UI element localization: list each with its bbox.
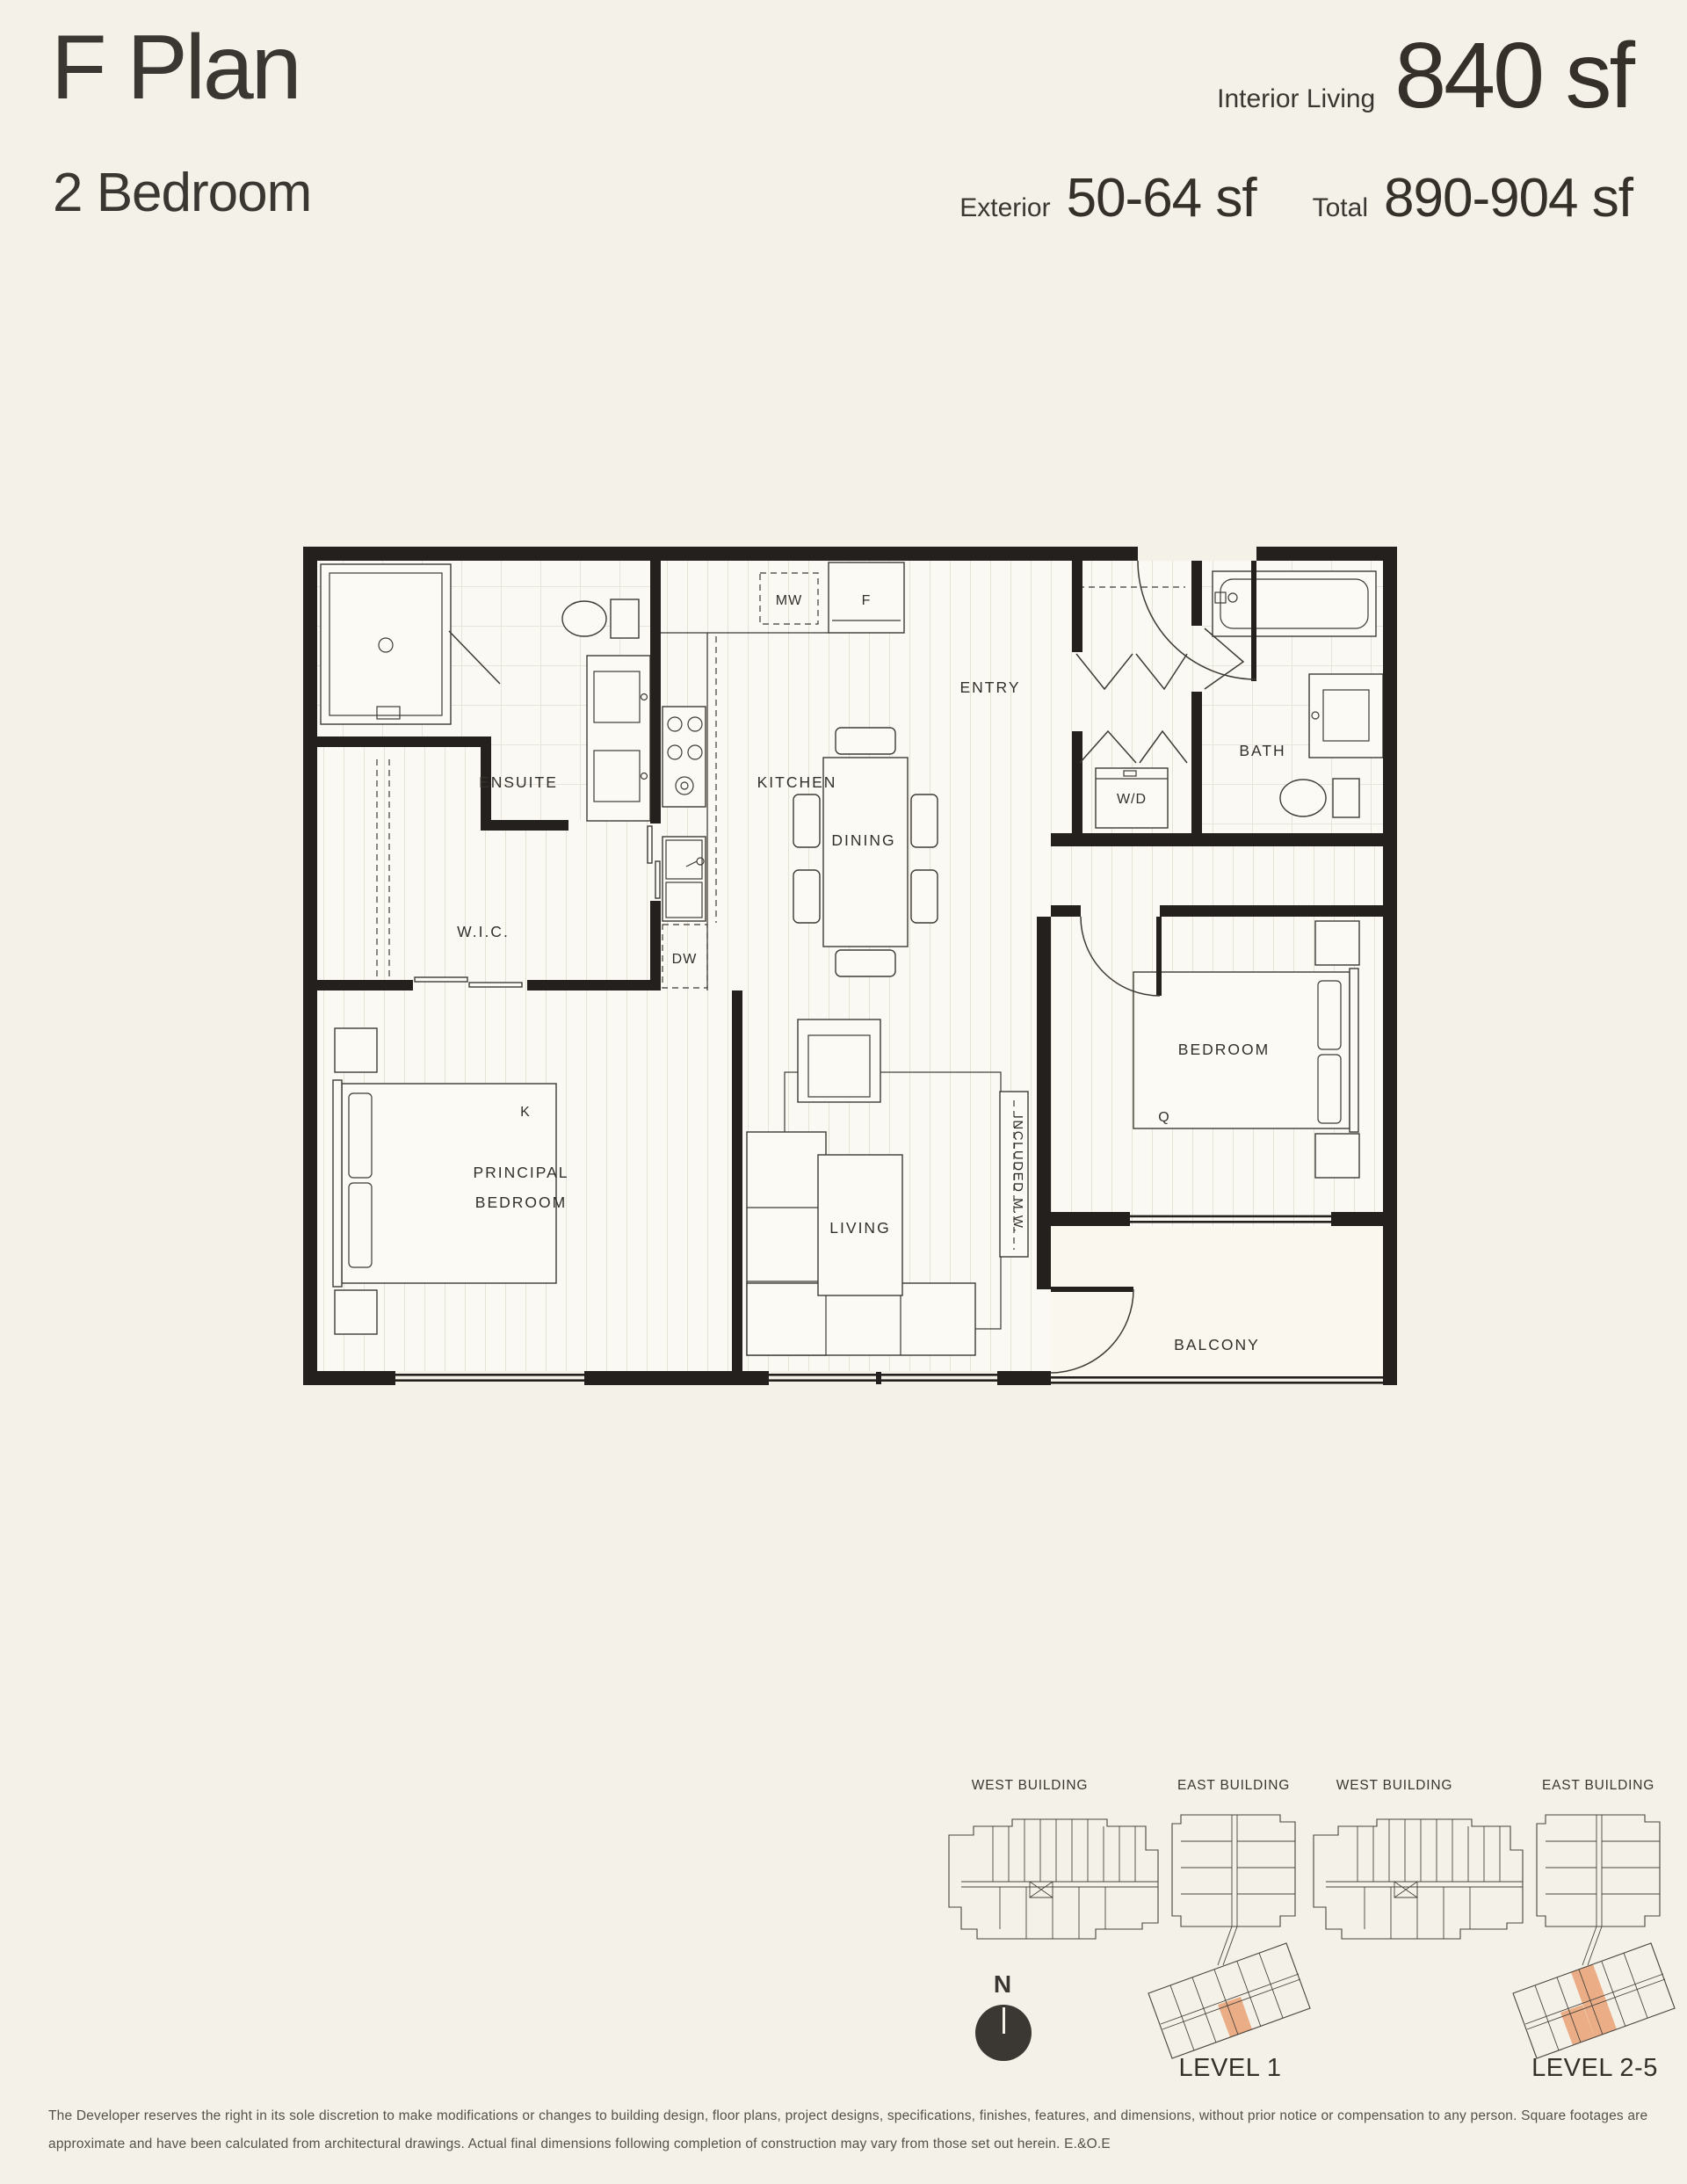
- wic-label: W.I.C.: [457, 923, 510, 940]
- bath-label: BATH: [1239, 742, 1285, 759]
- microwave-label: MW: [776, 593, 802, 608]
- legal-disclaimer: The Developer reserves the right in its …: [48, 2102, 1665, 2159]
- east-building-label: EAST BUILDING: [1177, 1778, 1290, 1793]
- west-building-label: WEST BUILDING: [1336, 1778, 1452, 1793]
- kitchen-sink: [662, 837, 706, 921]
- ensuite-label: ENSUITE: [479, 773, 558, 791]
- fridge-label: F: [862, 593, 872, 608]
- west-building-label: WEST BUILDING: [972, 1778, 1088, 1793]
- total-label: Total: [1313, 193, 1368, 223]
- balcony-floor: [1051, 1226, 1383, 1376]
- nightstand: [1315, 1134, 1359, 1178]
- dining-label: DINING: [831, 831, 895, 849]
- nightstand: [335, 1290, 377, 1334]
- level-label: LEVEL 1: [1179, 2054, 1282, 2082]
- bedroom-label: BEDROOM: [1178, 1041, 1270, 1058]
- principal-bedroom-label-1: PRINCIPAL: [473, 1164, 568, 1181]
- cooktop: [662, 707, 706, 807]
- principal-bedroom-label-2: BEDROOM: [475, 1194, 567, 1211]
- west-building-outline: [1314, 1819, 1523, 1939]
- nightstand: [335, 1028, 377, 1072]
- balcony-label: BALCONY: [1174, 1336, 1260, 1353]
- armchair: [798, 1019, 880, 1102]
- balcony-railing: [1051, 1376, 1383, 1379]
- balcony-railing: [1051, 1382, 1383, 1384]
- stats-interior: Interior Living 840 sf: [1217, 23, 1633, 129]
- east-building-label: EAST BUILDING: [1542, 1778, 1654, 1793]
- floorplan-sheet: F Plan 2 Bedroom Interior Living 840 sf …: [0, 0, 1687, 2184]
- bathtub: [1213, 571, 1376, 636]
- queen-bed-label: Q: [1158, 1110, 1169, 1125]
- ensuite-vanity: [587, 656, 650, 821]
- wd-label: W/D: [1117, 792, 1147, 807]
- included-mw-label: INCLUDED M.W.: [1010, 1115, 1025, 1234]
- floor-plan-drawing: ENSUITE W.I.C. KITCHEN MW F DW ENTRY BAT…: [303, 547, 1397, 1399]
- king-bed-label: K: [520, 1105, 531, 1120]
- interior-living-value: 840 sf: [1394, 23, 1633, 129]
- entry-label: ENTRY: [960, 678, 1021, 696]
- dishwasher-label: DW: [672, 952, 698, 967]
- compass-needle: [1003, 2007, 1005, 2034]
- interior-living-label: Interior Living: [1217, 84, 1375, 114]
- level-label: LEVEL 2-5: [1531, 2054, 1658, 2082]
- nightstand: [1315, 921, 1359, 965]
- page-subtitle: 2 Bedroom: [53, 162, 311, 224]
- exterior-label: Exterior: [959, 193, 1050, 223]
- page-title: F Plan: [51, 16, 300, 120]
- bath-vanity: [1309, 674, 1383, 758]
- keyplan-level-2-5: WEST BUILDING EAST BUILDING LEVEL 2-5: [1307, 1767, 1684, 2092]
- kitchen-label: KITCHEN: [757, 773, 837, 791]
- compass-icon: [975, 2005, 1032, 2061]
- exterior-value: 50-64 sf: [1067, 167, 1256, 229]
- stats-exterior-total: Exterior 50-64 sf Total 890-904 sf: [959, 167, 1633, 229]
- total-value: 890-904 sf: [1384, 167, 1633, 229]
- west-building-outline: [949, 1819, 1158, 1939]
- living-label: LIVING: [829, 1219, 890, 1237]
- compass-north-label: N: [989, 1970, 1016, 1999]
